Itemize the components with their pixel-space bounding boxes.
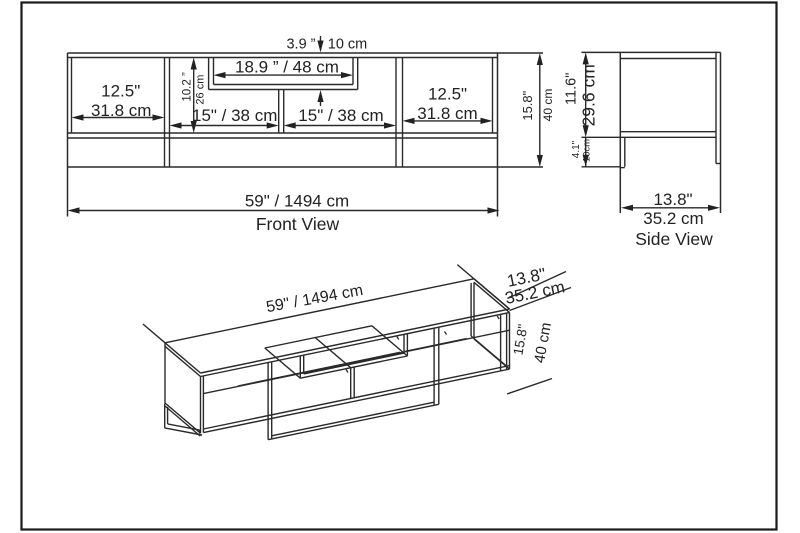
- svg-text:59" / 1494 cm: 59" / 1494 cm: [265, 282, 365, 316]
- svg-text:29.6 cm: 29.6 cm: [579, 64, 599, 126]
- svg-text:11.6": 11.6": [564, 73, 580, 105]
- svg-text:15.8": 15.8": [510, 323, 530, 356]
- svg-text:35.2 cm: 35.2 cm: [643, 209, 703, 228]
- svg-text:10.2 ”: 10.2 ”: [182, 72, 194, 102]
- svg-text:31.8 cm: 31.8 cm: [417, 104, 477, 123]
- svg-text:10 cm: 10 cm: [328, 37, 368, 53]
- svg-text:18.9 ” / 48 cm: 18.9 ” / 48 cm: [235, 58, 339, 77]
- svg-text:Front View: Front View: [256, 214, 340, 234]
- svg-text:15.8": 15.8": [520, 90, 535, 120]
- svg-text:59" / 1494 cm: 59" / 1494 cm: [245, 192, 349, 211]
- svg-text:15" / 38 cm: 15" / 38 cm: [192, 106, 277, 125]
- svg-text:12.5": 12.5": [101, 81, 140, 100]
- svg-text:13.8": 13.8": [653, 190, 692, 209]
- svg-text:15" / 38 cm: 15" / 38 cm: [298, 106, 383, 125]
- svg-text:12.5": 12.5": [428, 84, 467, 103]
- svg-text:4.1": 4.1": [571, 140, 582, 158]
- svg-text:Side View: Side View: [635, 229, 713, 249]
- svg-text:26 cm: 26 cm: [194, 75, 206, 105]
- svg-text:3.9 ”: 3.9 ”: [286, 37, 315, 53]
- svg-text:40 cm: 40 cm: [531, 321, 555, 364]
- svg-text:40 cm: 40 cm: [541, 89, 555, 122]
